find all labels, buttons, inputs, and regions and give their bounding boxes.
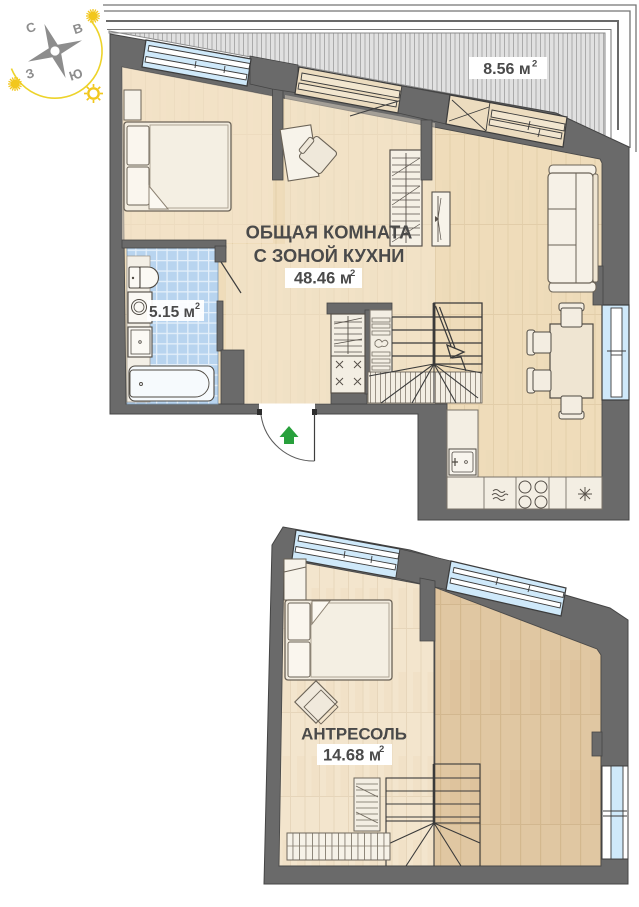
svg-text:2: 2 — [379, 744, 384, 755]
svg-text:С ЗОНОЙ КУХНИ: С ЗОНОЙ КУХНИ — [254, 245, 405, 266]
svg-text:14.68 м: 14.68 м — [323, 747, 381, 765]
svg-text:АНТРЕСОЛЬ: АНТРЕСОЛЬ — [301, 725, 407, 744]
svg-text:2: 2 — [532, 59, 537, 70]
svg-text:5.15 м: 5.15 м — [149, 304, 195, 321]
svg-text:2: 2 — [195, 301, 200, 311]
svg-text:48.46 м: 48.46 м — [294, 270, 352, 288]
svg-text:2: 2 — [350, 268, 355, 279]
svg-text:8.56 м: 8.56 м — [483, 61, 530, 78]
svg-text:ОБЩАЯ КОМНАТА: ОБЩАЯ КОМНАТА — [246, 222, 413, 243]
